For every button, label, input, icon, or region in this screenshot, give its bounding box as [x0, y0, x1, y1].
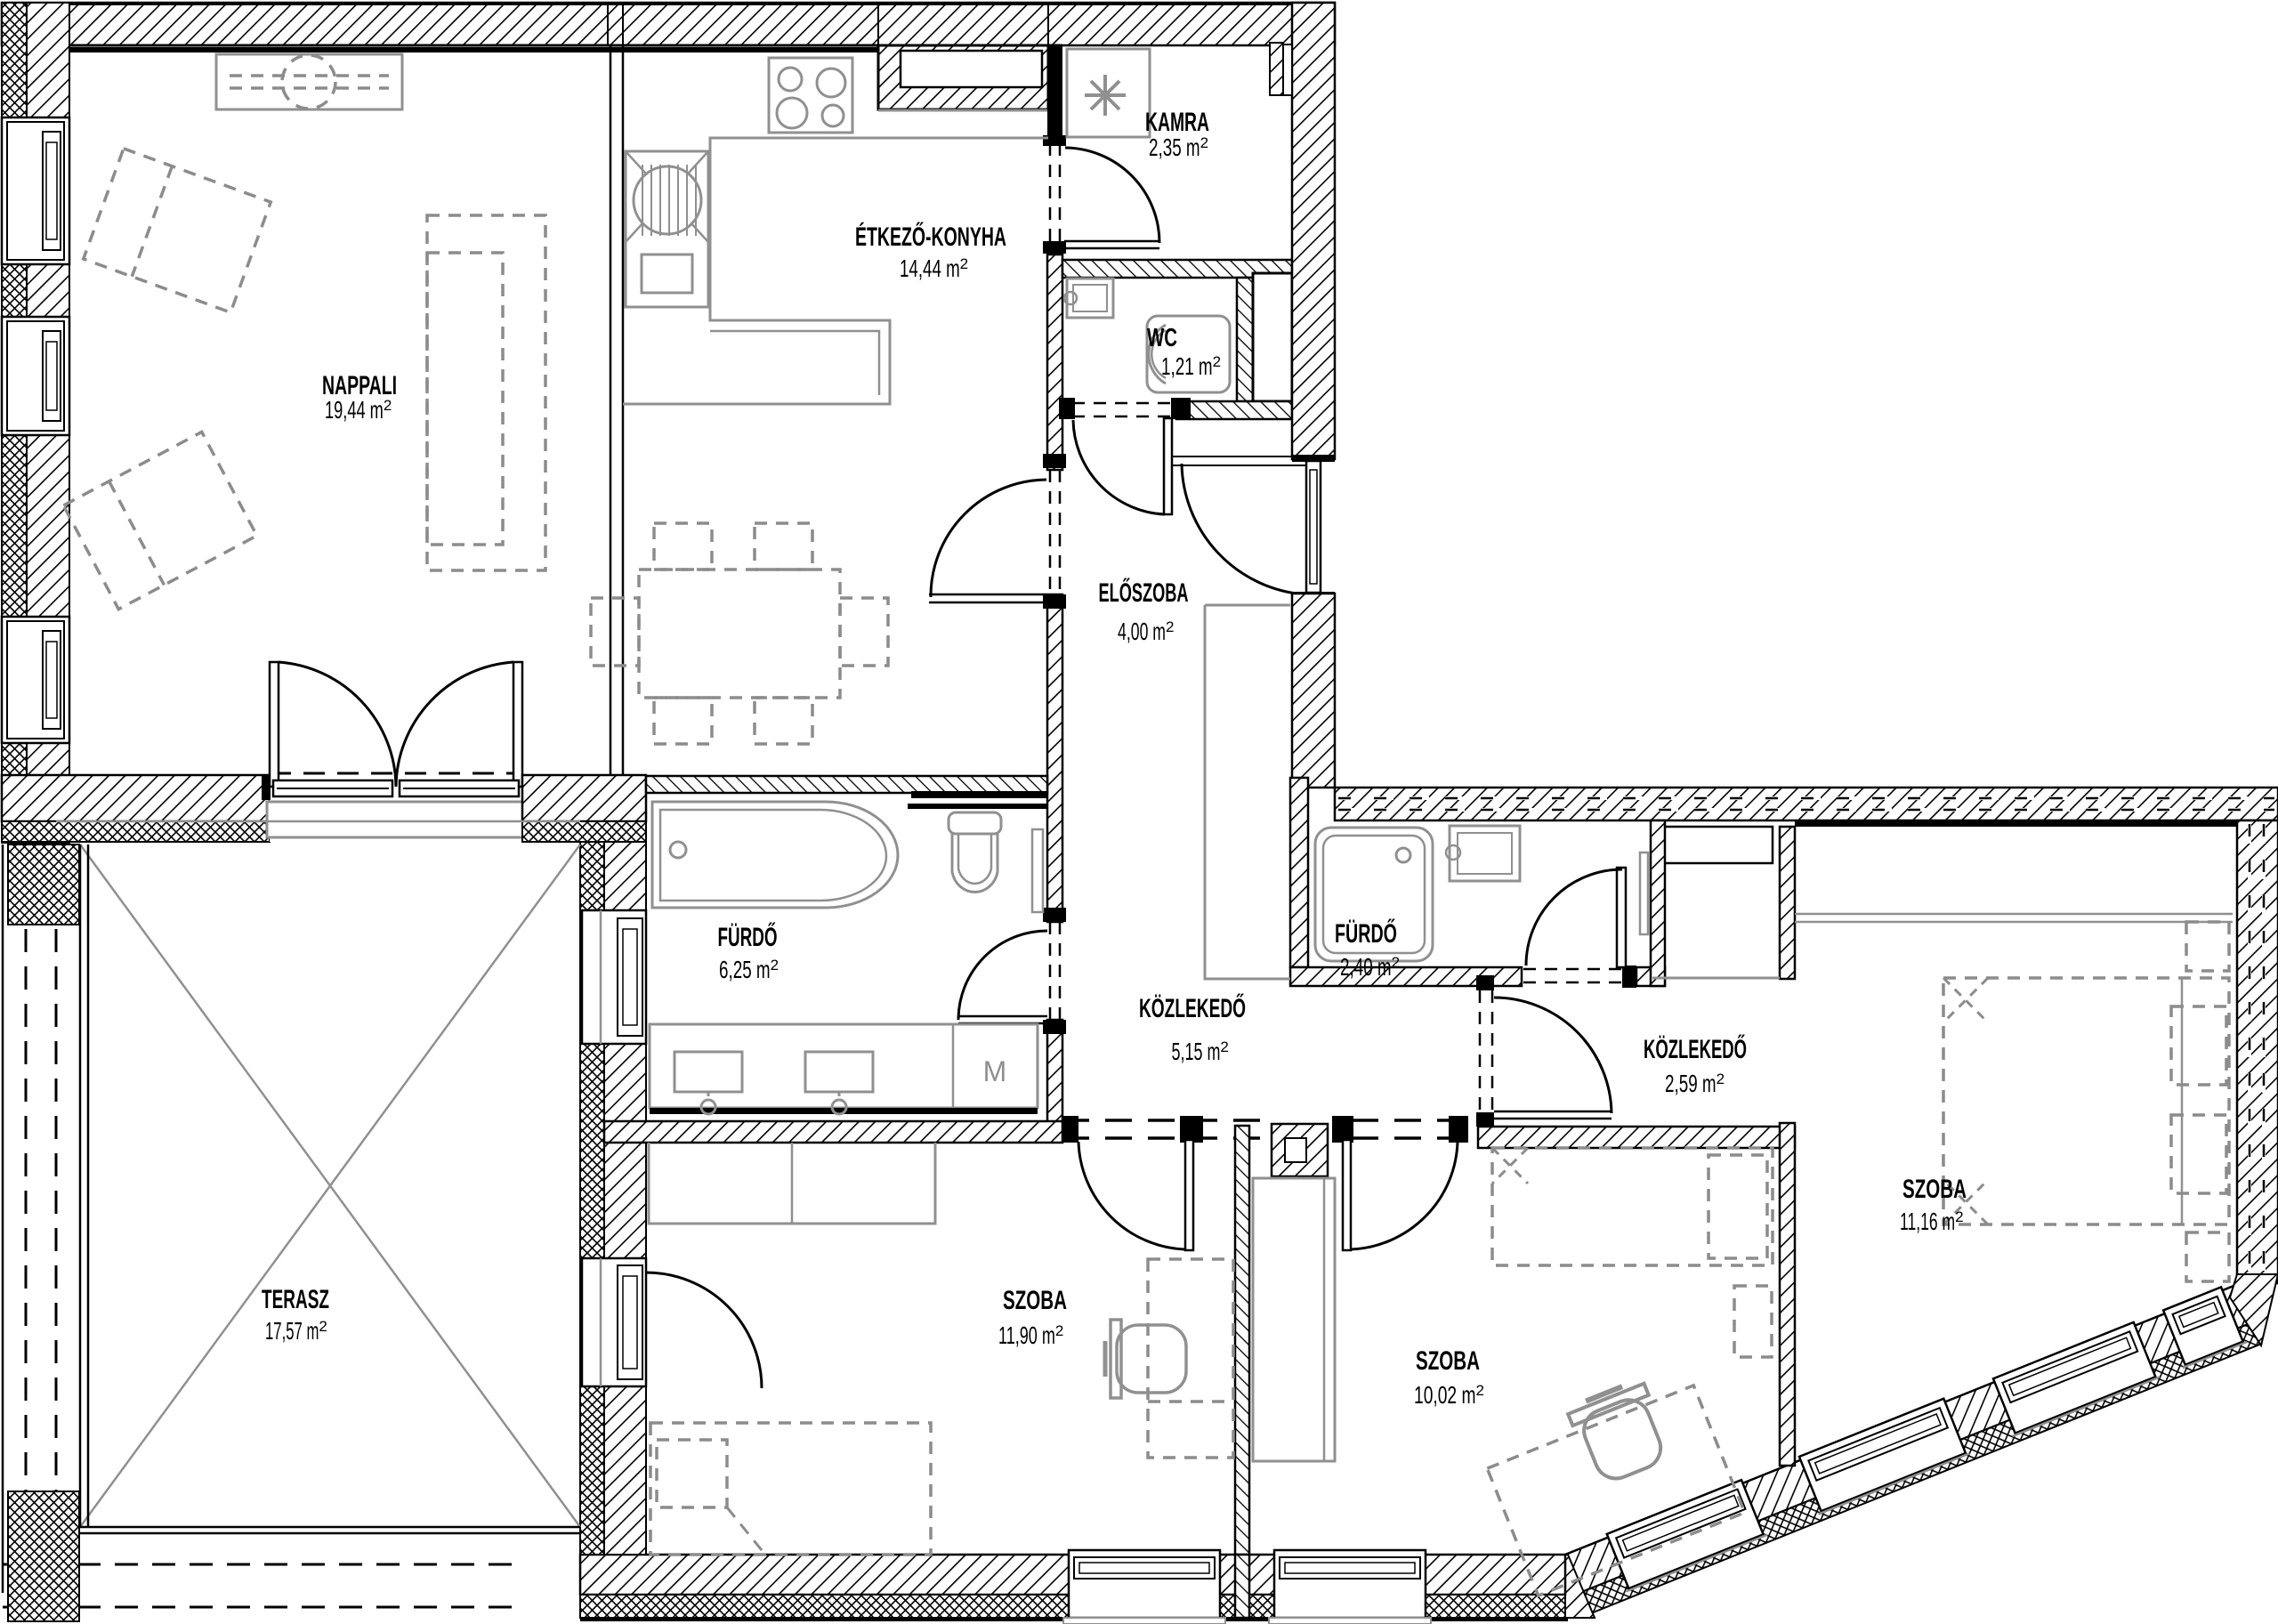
- svg-text:ÉTKEZŐ-KONYHA: ÉTKEZŐ-KONYHA: [855, 222, 1006, 252]
- svg-text:TERASZ: TERASZ: [262, 1285, 329, 1314]
- svg-text:19,44 m2: 19,44 m2: [325, 396, 392, 424]
- svg-text:SZOBA: SZOBA: [1902, 1175, 1967, 1204]
- svg-text:KÖZLEKEDŐ: KÖZLEKEDŐ: [1644, 1034, 1747, 1064]
- svg-text:2,35 m2: 2,35 m2: [1149, 133, 1208, 161]
- svg-text:11,16 m2: 11,16 m2: [1900, 1208, 1964, 1235]
- svg-text:FÜRDŐ: FÜRDŐ: [718, 922, 778, 952]
- svg-text:FÜRDŐ: FÜRDŐ: [1335, 918, 1397, 949]
- svg-text:5,15 m2: 5,15 m2: [1172, 1038, 1229, 1065]
- svg-text:11,90 m2: 11,90 m2: [998, 1321, 1063, 1349]
- svg-text:4,00 m2: 4,00 m2: [1118, 618, 1174, 645]
- svg-text:1,21 m2: 1,21 m2: [1161, 352, 1221, 380]
- svg-text:17,57 m2: 17,57 m2: [265, 1317, 327, 1345]
- svg-text:2,59 m2: 2,59 m2: [1665, 1070, 1725, 1097]
- svg-text:SZOBA: SZOBA: [1416, 1346, 1480, 1376]
- svg-text:2,40 m2: 2,40 m2: [1340, 953, 1400, 981]
- svg-text:KÖZLEKEDŐ: KÖZLEKEDŐ: [1139, 993, 1246, 1023]
- svg-text:SZOBA: SZOBA: [1003, 1286, 1067, 1315]
- svg-text:WC: WC: [1147, 324, 1177, 352]
- svg-text:M: M: [983, 1055, 1007, 1087]
- svg-text:14,44 m2: 14,44 m2: [900, 255, 968, 282]
- svg-text:ELŐSZOBA: ELŐSZOBA: [1099, 578, 1189, 608]
- svg-text:6,25 m2: 6,25 m2: [719, 956, 779, 983]
- svg-text:10,02 m2: 10,02 m2: [1414, 1381, 1484, 1409]
